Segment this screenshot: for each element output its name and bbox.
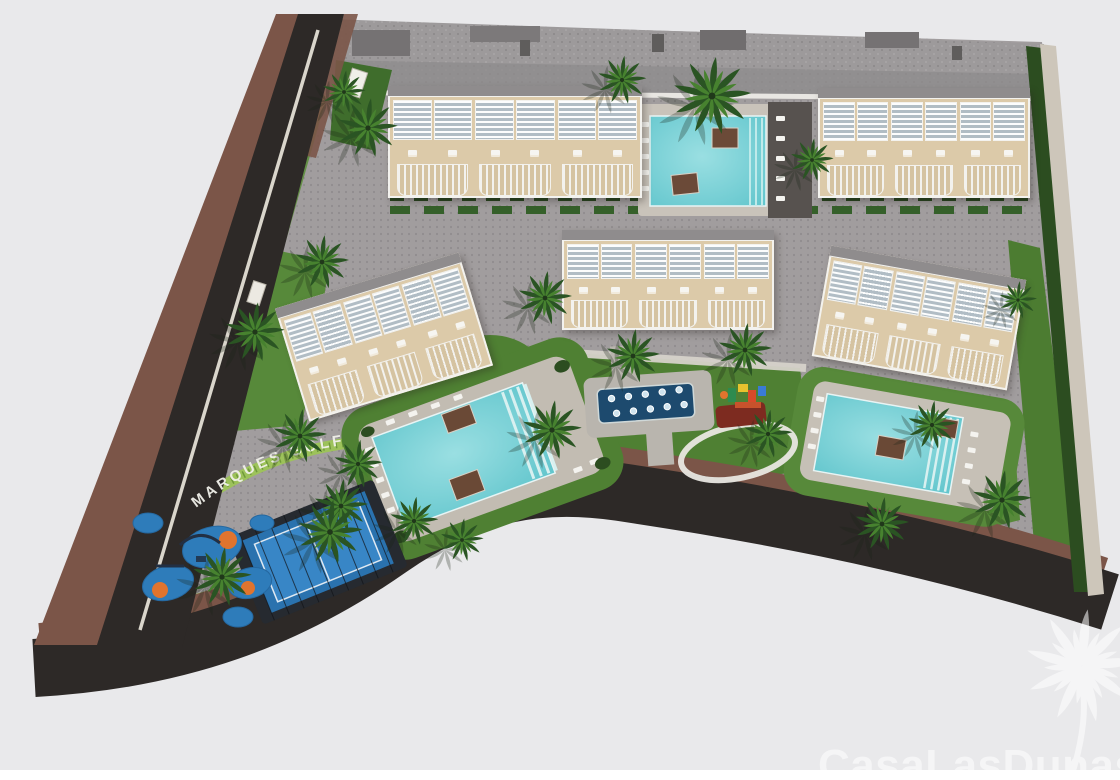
palm-trees [176,55,1037,616]
bottom-white-strip [0,770,1120,780]
watermark: CasaLasDunas [818,609,1120,780]
site-plan-render: MARQUES GOLF [0,0,1120,780]
flora-layer: CasaLasDunas [0,0,1120,780]
